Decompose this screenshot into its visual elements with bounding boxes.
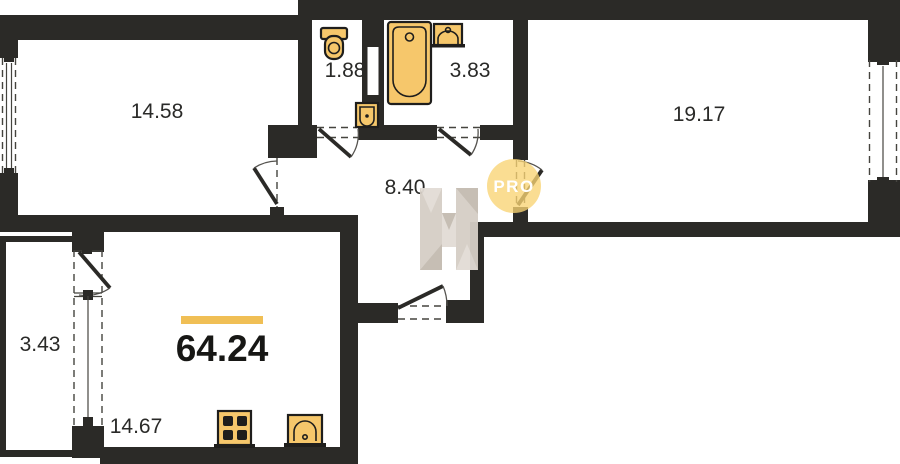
total-area: 64.24 — [176, 316, 269, 369]
room-label-kitchen-living: 14.67 — [110, 415, 163, 438]
room-label-living-room: 19.17 — [673, 103, 726, 126]
stove-icon — [214, 411, 255, 448]
vent-shaft — [367, 46, 380, 96]
door-bedroom — [254, 158, 277, 207]
bathroom-sink-icon — [431, 24, 465, 48]
door-bathroom — [437, 128, 480, 156]
balcony-door-window-unit — [74, 248, 110, 428]
door-wc — [317, 128, 358, 158]
pro-badge-text: PRO — [493, 177, 534, 196]
door-entrance — [398, 286, 447, 319]
kitchen-sink-icon — [284, 415, 326, 447]
h-watermark-logo — [420, 188, 478, 270]
window-bedroom — [3, 55, 16, 175]
room-label-hallway: 8.40 — [385, 176, 426, 199]
wc-sink-icon — [356, 103, 378, 127]
total-area-accent-bar — [181, 316, 263, 324]
room-label-bedroom: 14.58 — [131, 100, 184, 123]
room-label-bathroom: 3.83 — [450, 59, 491, 82]
room-label-balcony: 3.43 — [20, 333, 61, 356]
toilet-icon — [321, 28, 347, 59]
room-label-wc: 1.88 — [325, 59, 366, 82]
pro-badge: PRO — [487, 159, 541, 213]
bathtub-icon — [388, 22, 431, 104]
total-area-value: 64.24 — [176, 328, 269, 369]
window-living-room — [870, 58, 897, 184]
floor-plan: 14.58 1.88 3.83 19.17 8.40 3.43 14.67 64… — [0, 0, 900, 464]
